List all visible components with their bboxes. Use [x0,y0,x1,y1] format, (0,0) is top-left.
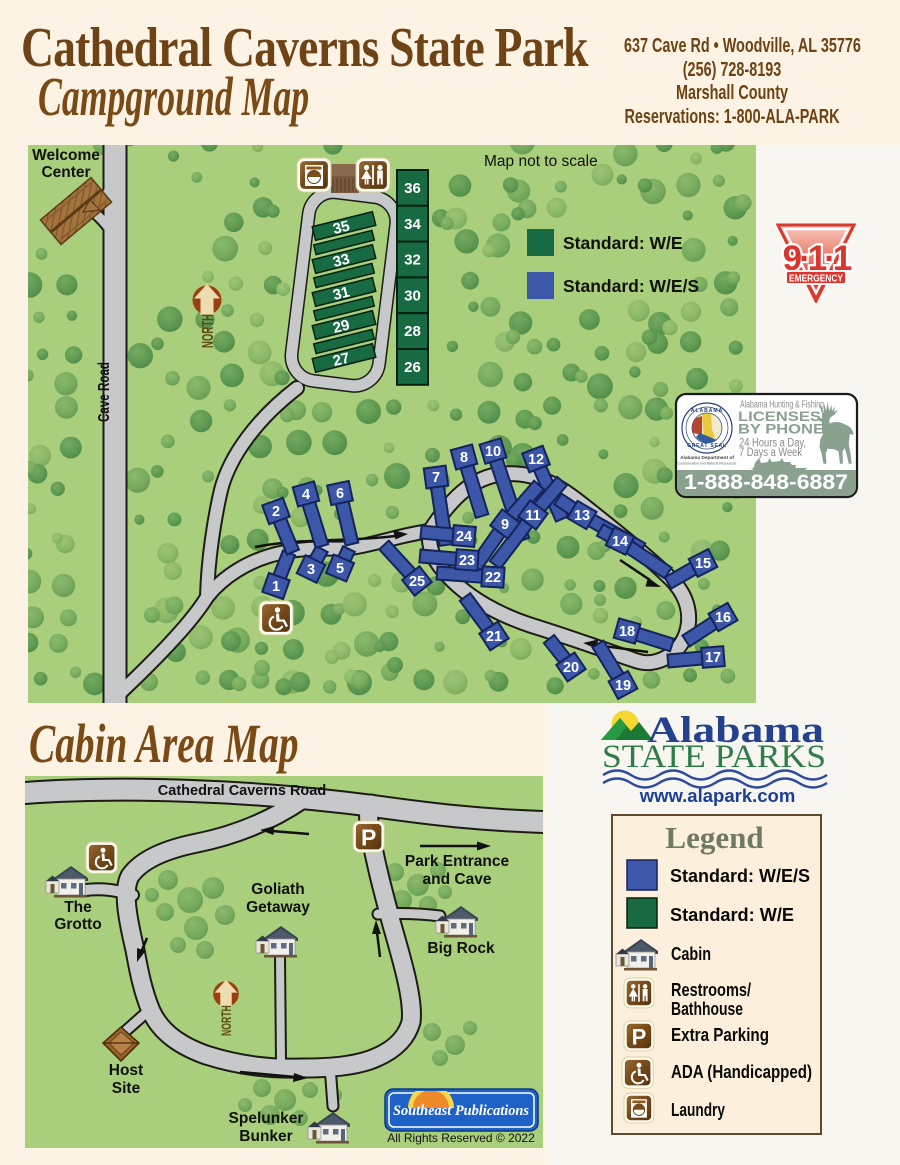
svg-text:Cave Road: Cave Road [96,362,113,422]
svg-text:Standard: W/E: Standard: W/E [563,233,683,253]
svg-text:NORTH: NORTH [199,314,217,348]
svg-text:Site: Site [112,1080,141,1097]
svg-text:15: 15 [695,556,711,572]
svg-text:4: 4 [302,487,310,503]
svg-text:24: 24 [456,529,472,545]
svg-text:Cathedral Caverns Road: Cathedral Caverns Road [158,783,326,799]
svg-text:6: 6 [336,486,344,502]
svg-text:19: 19 [615,678,631,694]
svg-text:18: 18 [619,624,635,640]
svg-text:Standard: W/E/S: Standard: W/E/S [670,865,810,886]
svg-text:Goliath: Goliath [251,881,304,898]
svg-text:32: 32 [404,252,421,269]
svg-text:Alabama Department of: Alabama Department of [680,455,734,461]
svg-text:GREAT SEAL: GREAT SEAL [687,443,727,449]
svg-text:34: 34 [404,216,421,233]
svg-text:17: 17 [705,650,721,666]
svg-text:26: 26 [404,359,421,376]
svg-text:Restrooms/: Restrooms/ [671,979,751,1000]
svg-text:12: 12 [528,452,544,468]
svg-text:2: 2 [272,504,280,520]
svg-text:Extra Parking: Extra Parking [671,1024,769,1045]
svg-text:Spelunker: Spelunker [229,1110,304,1127]
svg-text:ADA (Handicapped): ADA (Handicapped) [671,1061,812,1082]
svg-text:and Cave: and Cave [423,871,492,888]
svg-text:1: 1 [272,579,280,595]
svg-text:Big Rock: Big Rock [427,940,495,957]
svg-text:Bunker: Bunker [239,1128,292,1145]
svg-text:28: 28 [404,323,421,340]
svg-text:1-888-848-6887: 1-888-848-6887 [684,471,848,494]
svg-text:Southeast Publications: Southeast Publications [393,1103,529,1119]
svg-text:9: 9 [501,517,509,533]
svg-text:23: 23 [459,553,475,569]
svg-text:22: 22 [485,570,501,586]
svg-text:Bathhouse: Bathhouse [671,998,743,1019]
svg-text:25: 25 [409,574,425,590]
svg-text:Center: Center [41,164,90,181]
svg-text:Grotto: Grotto [54,916,101,933]
svg-text:Map not to scale: Map not to scale [484,153,598,170]
svg-text:7: 7 [432,470,440,486]
svg-text:36: 36 [404,180,421,197]
svg-text:13: 13 [574,508,590,524]
svg-text:STATE PARKS: STATE PARKS [602,739,826,775]
svg-text:Cabin: Cabin [671,943,711,964]
svg-text:ALABAMA: ALABAMA [691,408,723,414]
svg-text:20: 20 [563,660,579,676]
svg-text:7 Days a Week: 7 Days a Week [739,447,802,459]
svg-text:The: The [64,899,92,916]
svg-text:All Rights Reserved © 2022: All Rights Reserved © 2022 [387,1131,535,1145]
svg-text:5: 5 [336,561,344,577]
svg-text:Host: Host [109,1062,143,1079]
svg-text:EMERGENCY: EMERGENCY [789,274,843,285]
svg-text:10: 10 [485,444,501,460]
svg-text:BY PHONE: BY PHONE [738,422,824,437]
svg-text:Standard: W/E/S: Standard: W/E/S [563,276,699,296]
svg-text:21: 21 [486,629,502,645]
svg-text:16: 16 [715,610,731,626]
svg-text:Standard: W/E: Standard: W/E [670,904,794,925]
svg-text:11: 11 [525,508,540,524]
svg-text:Welcome: Welcome [32,147,100,164]
svg-text:3: 3 [307,562,315,578]
svg-text:Laundry: Laundry [671,1099,726,1120]
svg-text:30: 30 [404,287,421,304]
svg-text:Getaway: Getaway [246,899,310,916]
svg-text:Park Entrance: Park Entrance [405,853,510,870]
svg-text:8: 8 [460,450,468,466]
svg-text:Conservation and Natural Resou: Conservation and Natural Resources [678,462,737,466]
svg-text:NORTH: NORTH [219,1005,235,1036]
svg-text:14: 14 [612,534,628,550]
